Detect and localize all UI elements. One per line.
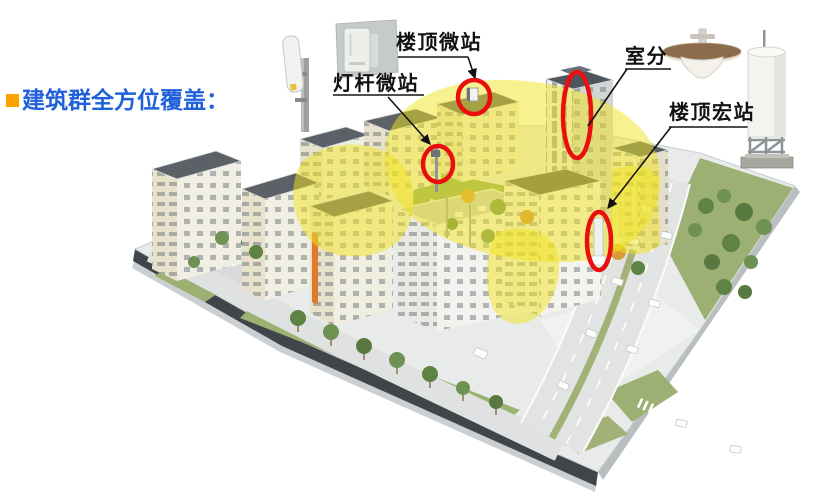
wall-mounted-micro-station-icon (336, 20, 398, 78)
label-rooftop-macro-station: 楼顶宏站 (669, 100, 755, 124)
scene-illustration (0, 0, 838, 496)
macro-station-cabinet-icon (741, 30, 793, 168)
label-pole-micro-station: 灯杆微站 (333, 71, 419, 95)
indoor-ceiling-antenna-icon (663, 29, 741, 78)
coverage-blob (293, 144, 414, 256)
label-indoor-distribution: 室分 (625, 44, 668, 68)
slide-canvas: 建筑群全方位覆盖： 楼顶微站 灯杆微站 室分 楼顶宏站 (0, 0, 838, 496)
label-rooftop-micro-station: 楼顶微站 (396, 30, 482, 54)
coverage-blob (610, 166, 660, 254)
page-title: 建筑群全方位覆盖： (22, 86, 229, 114)
callout-rooftop-micro-arrow (468, 57, 475, 78)
pole-micro-antenna-icon (282, 35, 309, 132)
slide-title-row: 建筑群全方位覆盖： (6, 86, 229, 114)
title-bullet-icon (6, 94, 19, 107)
